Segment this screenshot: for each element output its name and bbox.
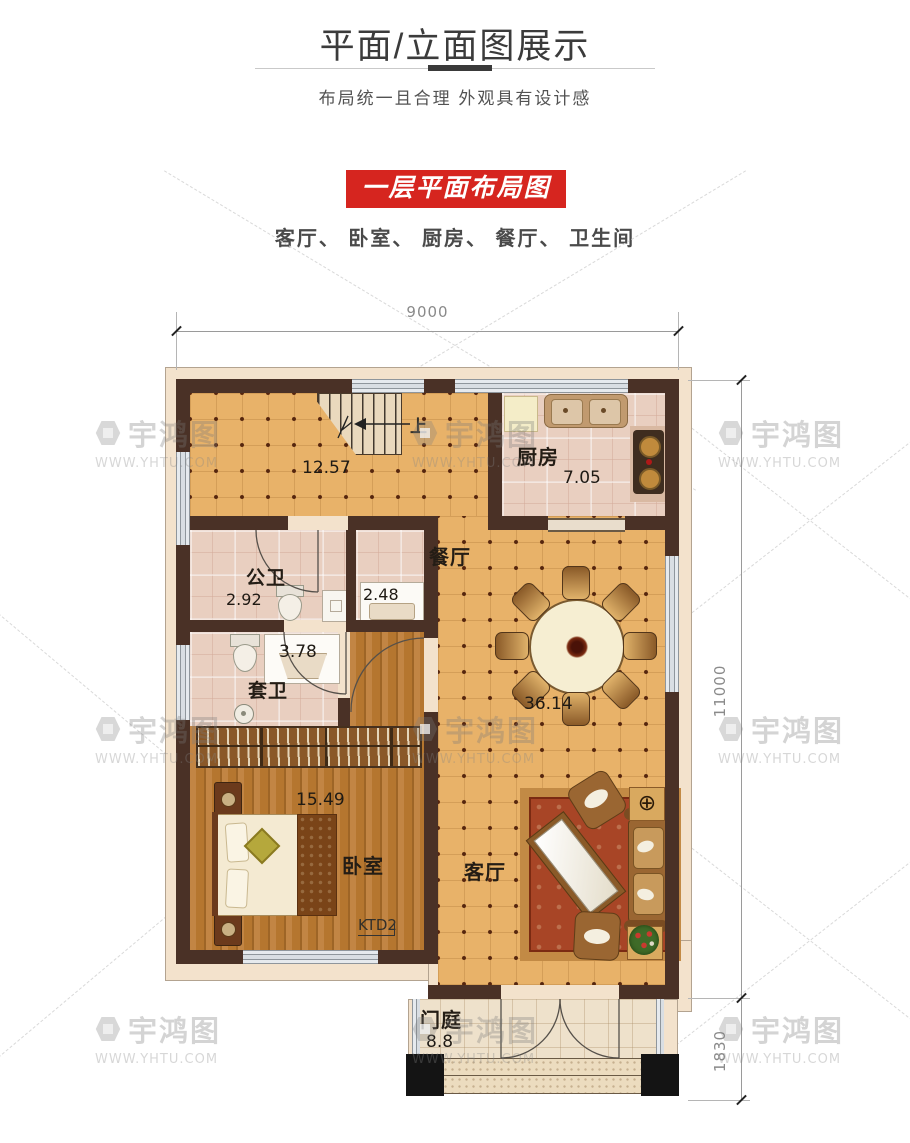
armchair-cushion [584, 928, 611, 944]
ensuite-toilet [230, 634, 258, 670]
wall-kitchen-bottom [502, 516, 548, 530]
shower-head [234, 704, 254, 724]
public-bath-label: 公卫 [246, 563, 286, 590]
yhtu-logo-icon [95, 1016, 121, 1042]
shower-drain [330, 600, 342, 612]
ensuite-area-label: 3.78 [279, 642, 317, 662]
room-list: 客厅、 卧室、 厨房、 餐厅、 卫生间 [0, 222, 910, 251]
watermark-url: WWW.YHTU.COM [95, 456, 221, 471]
bedroom-label: 卧室 [342, 850, 384, 879]
vanity-area-label: 2.48 [363, 585, 399, 604]
kitchen-sink [544, 394, 628, 428]
kitchen-stove [633, 430, 664, 494]
table-centerpiece [566, 636, 588, 658]
nightstand-knob [221, 922, 236, 937]
dim-line-right [741, 380, 742, 999]
section-banner: 一层平面布局图 [346, 170, 566, 208]
public-bath-toilet [276, 585, 302, 619]
wall-bottom-living [619, 985, 679, 999]
wall-bath-divider-v [346, 530, 356, 620]
yhtu-logo-icon [95, 716, 121, 742]
nightstand-knob [221, 792, 236, 807]
kitchen-area-label: 7.05 [563, 468, 601, 488]
toilet-bowl [233, 644, 257, 672]
watermark-url: WWW.YHTU.COM [412, 752, 538, 767]
watermark-url: WWW.YHTU.COM [718, 752, 844, 767]
watermark-brand: 宇鸿图 [751, 708, 844, 750]
sink-drain-dot [563, 408, 568, 413]
title-divider-accent [428, 65, 492, 71]
dim-width-label: 9000 [176, 303, 679, 321]
watermark-brand: 宇鸿图 [751, 1008, 844, 1050]
watermark-url: WWW.YHTU.COM [718, 456, 844, 471]
watermark-brand: 宇鸿图 [128, 412, 221, 454]
stove-burner [639, 468, 661, 490]
watermark-url: WWW.YHTU.COM [412, 456, 538, 471]
dining-chair [562, 566, 590, 600]
watermark: 宇鸿图 WWW.YHTU.COM [95, 1008, 221, 1067]
yhtu-logo-icon [412, 716, 438, 742]
yhtu-logo-icon [412, 1016, 438, 1042]
window-dining-right [665, 556, 679, 692]
watermark: 宇鸿图 WWW.YHTU.COM [95, 412, 221, 471]
stair-hall-area-label: 12.57 [302, 458, 351, 478]
watermark-url: WWW.YHTU.COM [95, 1052, 221, 1067]
watermark: 宇鸿图 WWW.YHTU.COM [412, 412, 538, 471]
window-bedroom [243, 950, 378, 964]
watermark-brand: 宇鸿图 [445, 708, 538, 750]
sink-drain-dot [601, 408, 606, 413]
wall-bottom-living [428, 985, 501, 999]
porch-column [641, 1054, 679, 1096]
wall-bath-top [190, 516, 288, 530]
stove-burner [639, 436, 661, 458]
bed-throw-blanket [297, 814, 337, 916]
page-subtitle: 布局统一且合理 外观具有设计感 [0, 84, 910, 109]
wardrobe-rod [198, 745, 420, 747]
watermark: 宇鸿图 WWW.YHTU.COM [718, 708, 844, 767]
nightstand [214, 782, 242, 816]
window-label-leader [358, 922, 395, 936]
dim-line-top [176, 331, 679, 332]
wall-bath-divider-h [346, 620, 438, 632]
watermark-url: WWW.YHTU.COM [412, 1052, 538, 1067]
wall-bath-divider-h [190, 620, 284, 632]
watermark-brand: 宇鸿图 [445, 412, 538, 454]
nightstand [214, 912, 242, 946]
ensuite-label: 套卫 [248, 676, 288, 703]
dining-label: 餐厅 [429, 541, 471, 570]
dining-chair [495, 632, 529, 660]
wardrobe [196, 726, 422, 768]
yhtu-logo-icon [718, 716, 744, 742]
watermark-brand: 宇鸿图 [128, 708, 221, 750]
watermark: 宇鸿图 WWW.YHTU.COM [95, 708, 221, 767]
watermark: 宇鸿图 WWW.YHTU.COM [718, 412, 844, 471]
sofa [628, 818, 668, 924]
porch-step [420, 1075, 662, 1094]
side-table-compass: ⊕ [629, 787, 665, 821]
bed-pillow [225, 868, 249, 908]
yhtu-logo-icon [412, 420, 438, 446]
vanity-bowl [369, 603, 415, 620]
yhtu-logo-icon [718, 1016, 744, 1042]
armchair-cushion [581, 785, 611, 811]
watermark-brand: 宇鸿图 [128, 1008, 221, 1050]
watermark-url: WWW.YHTU.COM [95, 752, 221, 767]
window-kitchen [455, 379, 628, 393]
watermark: 宇鸿图 WWW.YHTU.COM [412, 1008, 538, 1067]
window-stair-hall [352, 379, 424, 393]
wall-kitchen-bottom [625, 516, 665, 530]
floor-plan-page: 平面/立面图展示 布局统一且合理 外观具有设计感 一层平面布局图 客厅、 卧室、… [0, 0, 910, 1143]
bed-diamond-cushion [244, 828, 281, 865]
living-label: 客厅 [464, 856, 506, 885]
yhtu-logo-icon [95, 420, 121, 446]
bed-headboard [212, 812, 218, 916]
watermark: 宇鸿图 WWW.YHTU.COM [412, 708, 538, 767]
kitchen-door-threshold [548, 518, 625, 532]
watermark-brand: 宇鸿图 [751, 412, 844, 454]
watermark-url: WWW.YHTU.COM [718, 1052, 844, 1067]
bedroom-area-label: 15.49 [296, 790, 345, 810]
watermark-brand: 宇鸿图 [445, 1008, 538, 1050]
watermark: 宇鸿图 WWW.YHTU.COM [718, 1008, 844, 1067]
bed [216, 814, 336, 916]
armchair [573, 911, 621, 961]
wall-ensuite-right [338, 698, 350, 726]
porch-side-rail [656, 999, 664, 1058]
shower-head-dot [241, 711, 246, 716]
page-title: 平面/立面图展示 [0, 18, 910, 69]
potted-plant [629, 925, 659, 955]
stove-knob [646, 459, 652, 465]
public-bath-area-label: 2.92 [226, 590, 262, 609]
yhtu-logo-icon [718, 420, 744, 446]
toilet-bowl [278, 594, 302, 621]
dining-chair [623, 632, 657, 660]
